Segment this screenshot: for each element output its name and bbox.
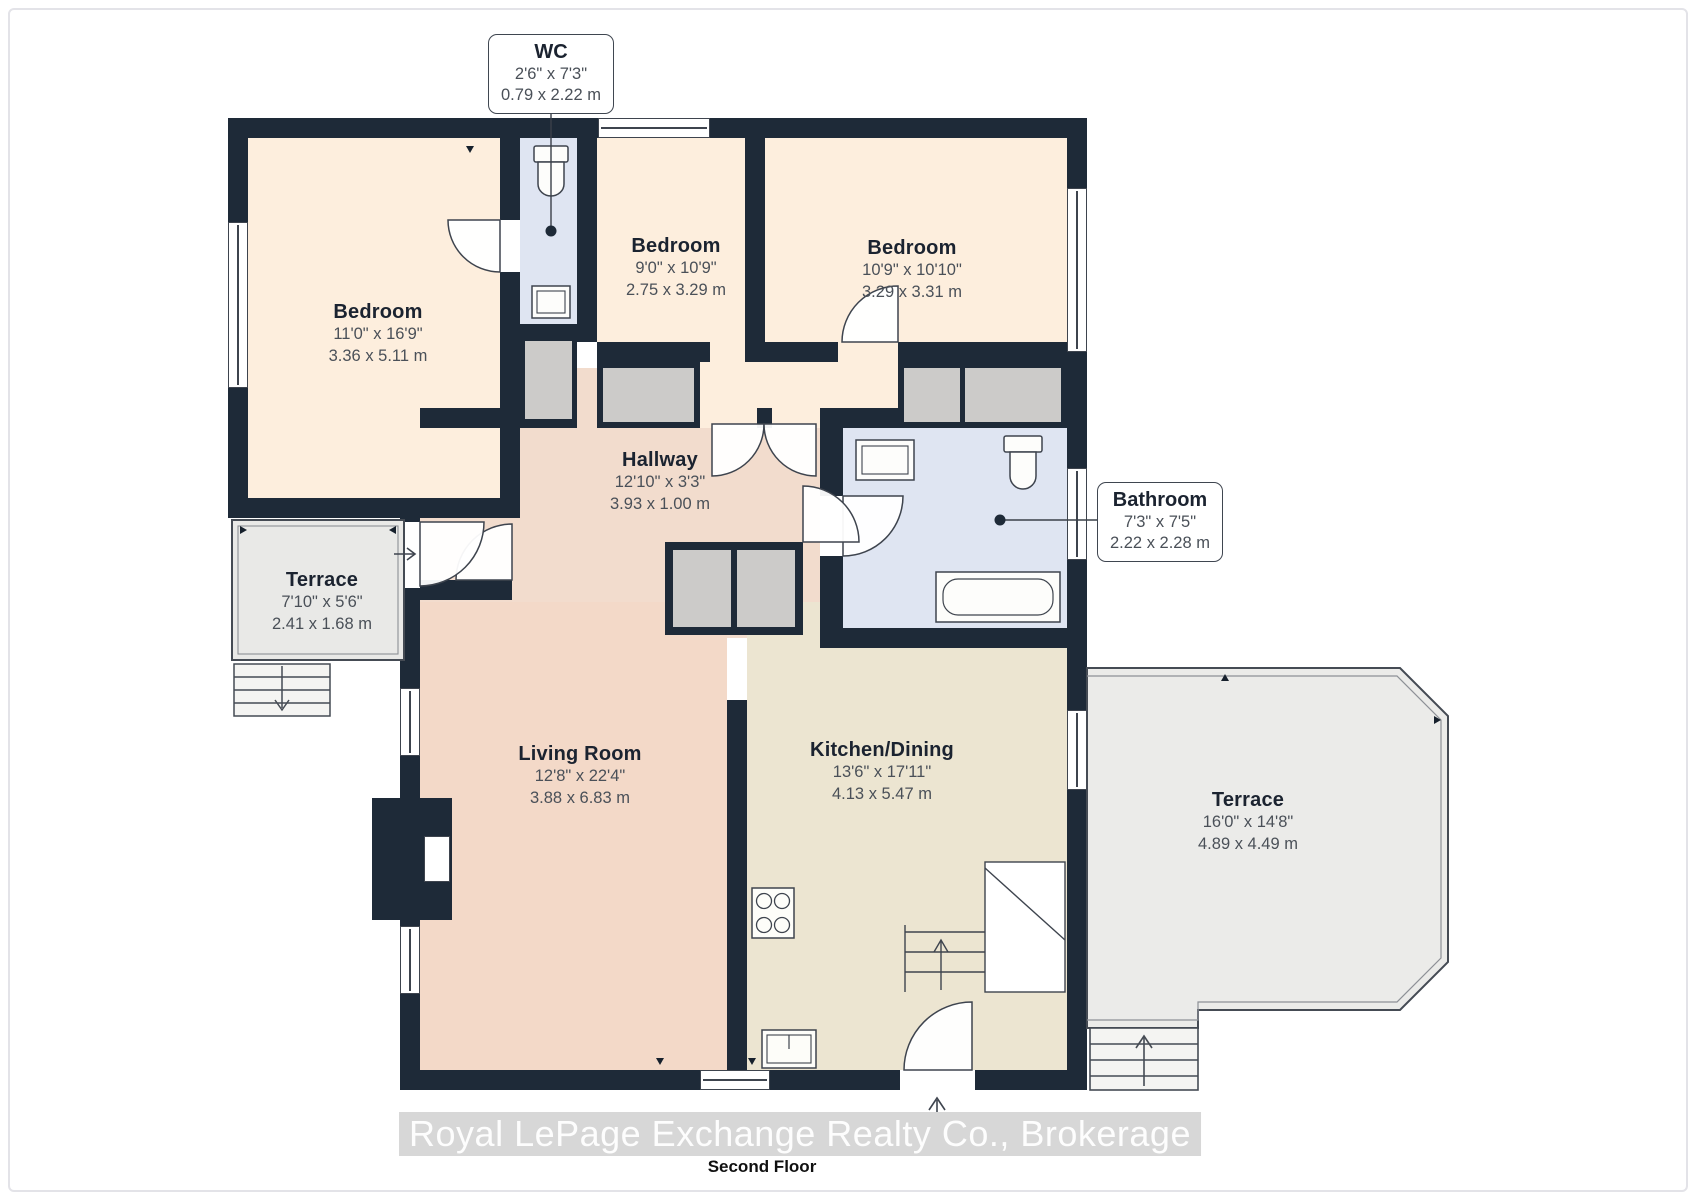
room-dim-imperial: 9'0" x 10'9" (626, 258, 726, 280)
kitchen-fixtures (752, 888, 816, 1068)
room-label-bedroom-right: Bedroom 10'9" x 10'10" 3.29 x 3.31 m (862, 236, 962, 303)
room-dim-imperial: 16'0" x 14'8" (1198, 812, 1298, 834)
room-label-living-room: Living Room 12'8" x 22'4" 3.88 x 6.83 m (518, 742, 641, 809)
room-label-terrace-right: Terrace 16'0" x 14'8" 4.89 x 4.49 m (1198, 788, 1298, 855)
door-arc (803, 486, 859, 542)
stairs-icon (234, 664, 330, 716)
brokerage-watermark: Royal LePage Exchange Realty Co., Broker… (399, 1112, 1201, 1156)
room-label-bedroom-left: Bedroom 11'0" x 16'9" 3.36 x 5.11 m (329, 300, 428, 367)
callout-dim-metric: 2.22 x 2.28 m (1110, 533, 1210, 554)
room-dim-imperial: 7'10" x 5'6" (272, 592, 372, 614)
room-name: Terrace (272, 568, 372, 592)
room-name: Living Room (518, 742, 641, 766)
plan-overlay (0, 0, 1696, 1200)
room-dim-imperial: 12'8" x 22'4" (518, 766, 641, 788)
room-dim-imperial: 12'10" x 3'3" (610, 472, 710, 494)
stairs-icon (1090, 1028, 1198, 1090)
callout-wc: WC 2'6" x 7'3" 0.79 x 2.22 m (488, 34, 614, 114)
stairs-icon (905, 862, 1065, 992)
room-dim-metric: 2.41 x 1.68 m (272, 614, 372, 636)
room-dim-imperial: 10'9" x 10'10" (862, 260, 962, 282)
room-dim-imperial: 11'0" x 16'9" (329, 324, 428, 346)
room-label-terrace-left: Terrace 7'10" x 5'6" 2.41 x 1.68 m (272, 568, 372, 635)
room-dim-metric: 4.89 x 4.49 m (1198, 834, 1298, 856)
room-dim-imperial: 13'6" x 17'11" (810, 762, 954, 784)
room-name: Kitchen/Dining (810, 738, 954, 762)
callout-title: WC (501, 40, 601, 64)
toilet-icon (1010, 452, 1036, 489)
callout-title: Bathroom (1110, 488, 1210, 512)
leader-dot (995, 515, 1006, 526)
toilet-icon (1004, 436, 1042, 452)
room-name: Bedroom (329, 300, 428, 324)
room-dim-metric: 2.75 x 3.29 m (626, 280, 726, 302)
room-dim-metric: 4.13 x 5.47 m (810, 784, 954, 806)
room-name: Bedroom (862, 236, 962, 260)
callout-dim-metric: 0.79 x 2.22 m (501, 85, 601, 106)
door-arc (712, 424, 764, 476)
room-dim-metric: 3.88 x 6.83 m (518, 788, 641, 810)
callout-bathroom: Bathroom 7'3" x 7'5" 2.22 x 2.28 m (1097, 482, 1223, 562)
callout-dim-imperial: 7'3" x 7'5" (1110, 512, 1210, 533)
door-arcs (420, 220, 972, 1070)
direction-arrows (394, 548, 945, 1136)
room-label-hallway: Hallway 12'10" x 3'3" 3.93 x 1.00 m (610, 448, 710, 515)
floor-caption: Second Floor (708, 1157, 817, 1177)
floorplan-canvas: Bedroom 11'0" x 16'9" 3.36 x 5.11 m Bedr… (0, 0, 1696, 1200)
room-dim-metric: 3.36 x 5.11 m (329, 346, 428, 368)
room-label-bedroom-middle: Bedroom 9'0" x 10'9" 2.75 x 3.29 m (626, 234, 726, 301)
door-arc (448, 220, 500, 272)
room-name: Bedroom (626, 234, 726, 258)
room-dim-metric: 3.93 x 1.00 m (610, 494, 710, 516)
callout-dim-imperial: 2'6" x 7'3" (501, 64, 601, 85)
leader-dot (546, 226, 557, 237)
room-name: Hallway (610, 448, 710, 472)
door-arc (764, 424, 816, 476)
room-dim-metric: 3.29 x 3.31 m (862, 282, 962, 304)
room-label-kitchen-dining: Kitchen/Dining 13'6" x 17'11" 4.13 x 5.4… (810, 738, 954, 805)
stair-landing (985, 862, 1065, 992)
door-arc (904, 1002, 972, 1070)
room-name: Terrace (1198, 788, 1298, 812)
